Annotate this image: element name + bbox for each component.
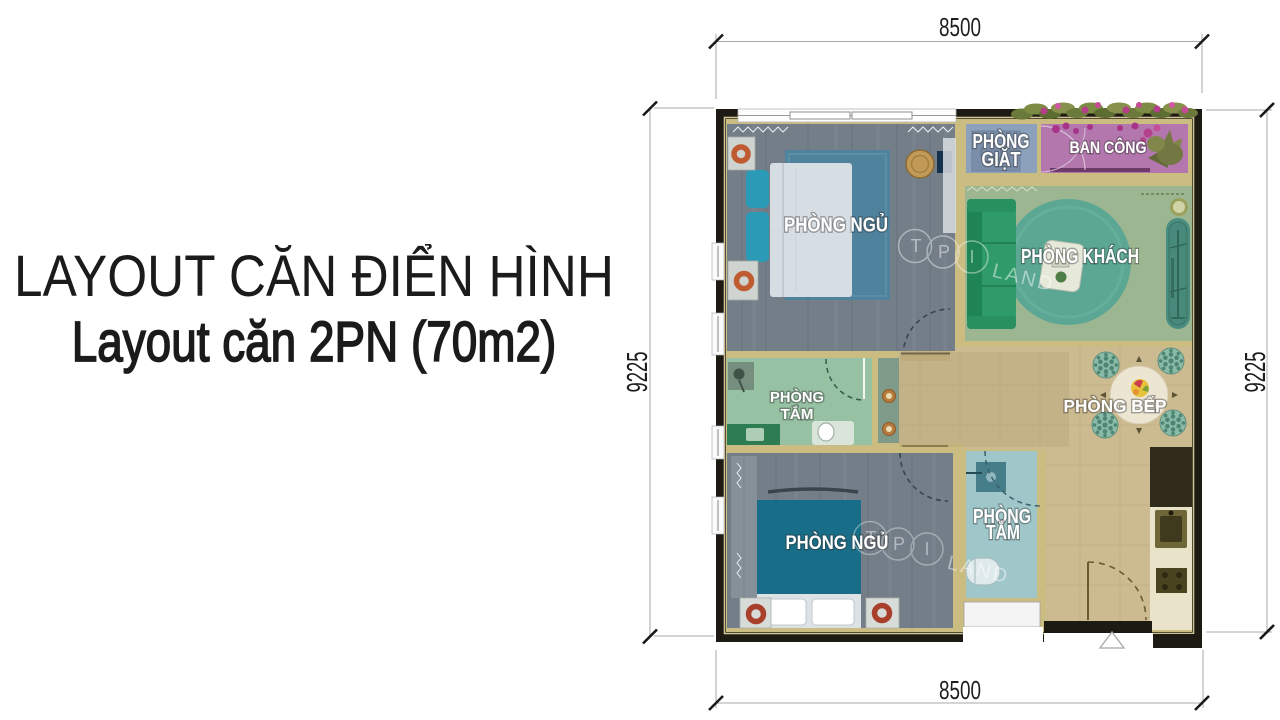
svg-text:I: I [924, 539, 929, 559]
svg-text:9225: 9225 [1240, 352, 1272, 393]
svg-text:T: T [866, 528, 877, 548]
svg-text:8500: 8500 [939, 675, 981, 705]
svg-text:PHÒNG NGỦ: PHÒNG NGỦ [784, 213, 888, 237]
svg-text:PHÒNG: PHÒNG [770, 388, 824, 406]
svg-text:BAN CÔNG: BAN CÔNG [1070, 138, 1147, 157]
svg-text:I: I [969, 247, 974, 267]
svg-text:GIẶT: GIẶT [982, 148, 1021, 171]
svg-text:8500: 8500 [939, 12, 981, 42]
svg-text:P: P [938, 242, 950, 262]
svg-text:PHÒNG BẾP: PHÒNG BẾP [1064, 395, 1167, 416]
svg-text:TẮM: TẮM [781, 405, 814, 423]
svg-text:TẮM: TẮM [986, 520, 1020, 544]
svg-text:PHÒNG KHÁCH: PHÒNG KHÁCH [1021, 244, 1139, 268]
svg-text:P: P [893, 534, 905, 554]
svg-text:9225: 9225 [622, 352, 654, 393]
svg-text:T: T [911, 236, 922, 256]
